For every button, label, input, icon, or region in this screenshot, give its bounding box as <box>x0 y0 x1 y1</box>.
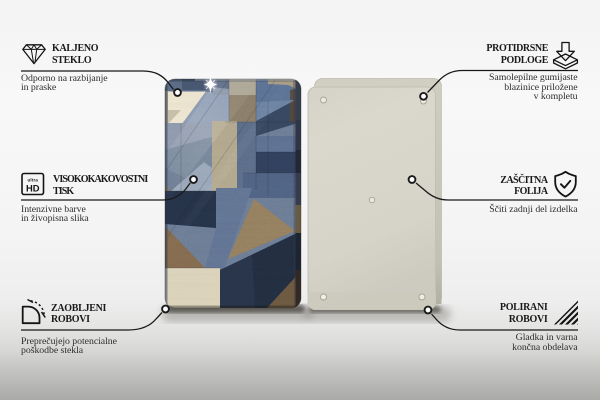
svg-text:HD: HD <box>26 183 40 194</box>
